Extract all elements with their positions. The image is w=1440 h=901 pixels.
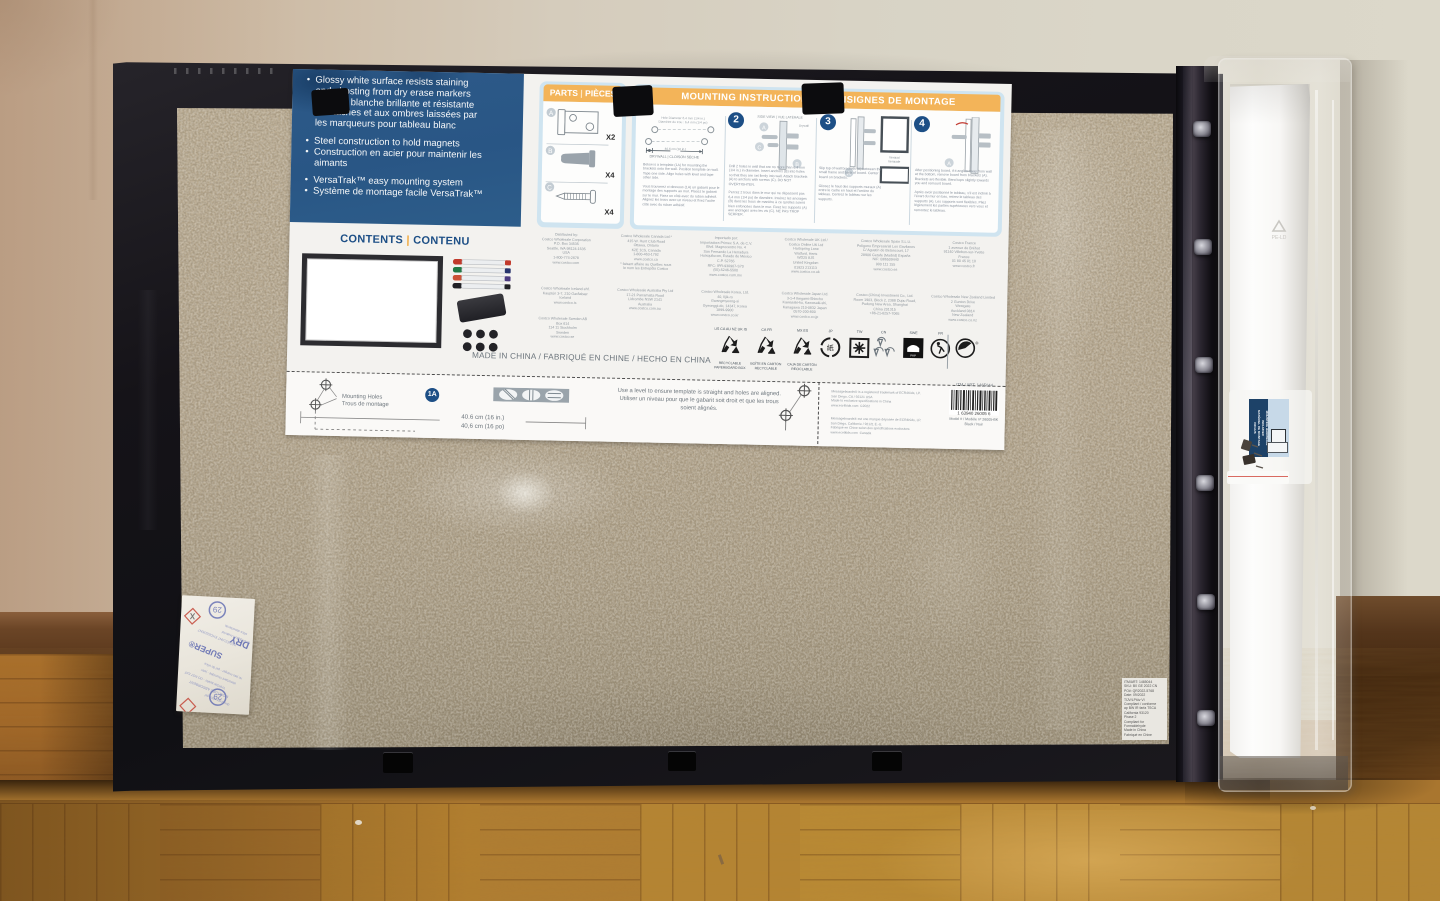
svg-text:Mounting Holes: Mounting Holes [342, 394, 382, 401]
svg-text:Diamètre du trou : 6,4 mm (1/4: Diamètre du trou : 6,4 mm (1/4 po) [658, 120, 707, 125]
svg-text:CA FR: CA FR [761, 328, 772, 332]
svg-text:PE-LD: PE-LD [1272, 235, 1287, 241]
svg-text:29: 29 [212, 605, 222, 614]
svg-text:C: C [547, 184, 552, 191]
svg-text:MX ES: MX ES [797, 329, 809, 333]
svg-text:TW: TW [857, 330, 863, 334]
svg-text:29: 29 [213, 692, 223, 701]
svg-text:A: A [947, 161, 951, 167]
svg-text:SUPER®: SUPER® [186, 638, 223, 661]
svg-text:FR: FR [938, 332, 943, 336]
svg-text:40,6 cm (16 po): 40,6 cm (16 po) [461, 423, 504, 431]
svg-text:X4: X4 [604, 208, 614, 217]
svg-text:Drywall: Drywall [799, 124, 809, 128]
svg-text:PAP: PAP [910, 353, 916, 357]
svg-text:CN: CN [881, 330, 887, 334]
svg-text:紙: 紙 [827, 343, 834, 352]
svg-text:40.6 cm (16 in.): 40.6 cm (16 in.) [665, 147, 687, 151]
svg-text:RECYCLABLE: RECYCLABLE [755, 366, 778, 370]
svg-text:X4: X4 [605, 171, 615, 180]
svg-text:JP: JP [828, 329, 833, 333]
svg-text:X2: X2 [606, 133, 615, 142]
svg-text:SIDE VIEW | VUE LATÉRALE: SIDE VIEW | VUE LATÉRALE [757, 114, 803, 120]
svg-text:40.6 cm (16 in.): 40.6 cm (16 in.) [461, 414, 504, 422]
svg-text:SWE: SWE [909, 331, 918, 335]
svg-text:DRYWALL | CLOISON SÈCHE: DRYWALL | CLOISON SÈCHE [649, 153, 699, 159]
svg-text:C: C [757, 145, 761, 151]
svg-text:1 63940 26005 6: 1 63940 26005 6 [957, 410, 991, 415]
svg-text:US CA AU NZ UK IS: US CA AU NZ UK IS [714, 327, 747, 332]
svg-text:Verticale: Verticale [888, 159, 901, 163]
svg-text:A: A [762, 125, 766, 131]
svg-text:B: B [548, 148, 552, 155]
svg-text:PAPERBOARD BOX: PAPERBOARD BOX [714, 365, 746, 370]
svg-text:®: ® [975, 340, 978, 345]
svg-text:RECICLABLE: RECICLABLE [791, 367, 813, 371]
